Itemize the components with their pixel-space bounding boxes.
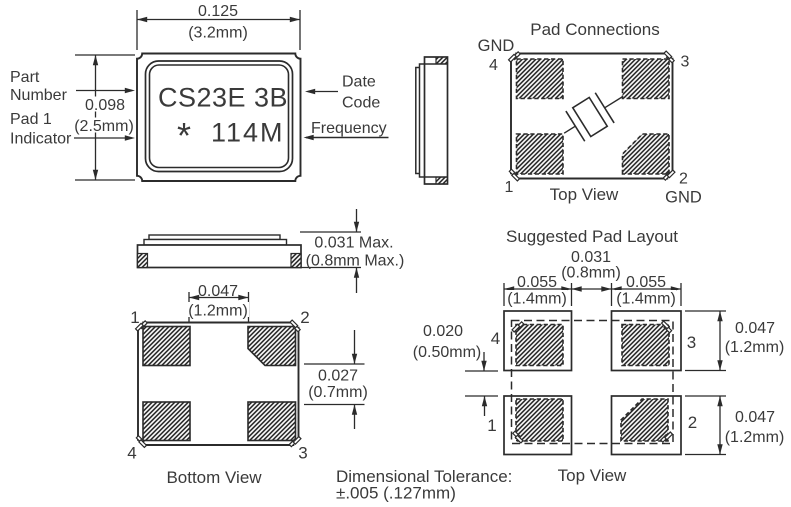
svg-text:Date: Date	[342, 73, 376, 90]
svg-text:GND: GND	[665, 188, 702, 206]
svg-text:Top View: Top View	[558, 466, 627, 485]
svg-text:Code: Code	[342, 94, 380, 111]
svg-text:±.005 (.127mm): ±.005 (.127mm)	[336, 484, 456, 503]
svg-text:Frequency: Frequency	[311, 120, 387, 137]
svg-text:GND: GND	[478, 37, 515, 55]
svg-text:114M: 114M	[211, 118, 285, 148]
svg-text:(3.2mm): (3.2mm)	[188, 24, 248, 41]
svg-text:0.020: 0.020	[423, 323, 463, 340]
svg-text:2: 2	[300, 308, 309, 327]
svg-text:0.047: 0.047	[735, 320, 775, 337]
svg-text:4: 4	[489, 57, 498, 74]
svg-text:(0.8mm Max.): (0.8mm Max.)	[306, 252, 405, 269]
svg-text:1: 1	[505, 179, 514, 196]
svg-text:Indicator: Indicator	[10, 130, 72, 147]
svg-text:0.055: 0.055	[626, 274, 666, 291]
svg-text:(2.5mm): (2.5mm)	[74, 118, 134, 135]
svg-text:2: 2	[688, 413, 697, 432]
svg-text:0.031: 0.031	[571, 249, 611, 266]
svg-text:(0.8mm): (0.8mm)	[561, 264, 621, 281]
svg-text:4: 4	[127, 444, 136, 463]
svg-text:2: 2	[679, 170, 688, 187]
svg-text:0.055: 0.055	[517, 274, 557, 291]
svg-text:(0.7mm): (0.7mm)	[308, 384, 368, 401]
svg-text:1: 1	[487, 416, 496, 435]
svg-text:(1.4mm): (1.4mm)	[616, 290, 676, 307]
svg-text:CS23E 3B: CS23E 3B	[158, 83, 288, 113]
svg-text:4: 4	[491, 329, 500, 348]
svg-text:0.125: 0.125	[198, 3, 238, 20]
svg-text:Top View: Top View	[550, 185, 619, 204]
svg-text:Number: Number	[10, 87, 68, 104]
svg-text:0.098: 0.098	[85, 97, 125, 114]
svg-text:(1.4mm): (1.4mm)	[507, 290, 567, 307]
svg-text:3: 3	[687, 333, 696, 352]
svg-text:(0.50mm): (0.50mm)	[413, 344, 481, 361]
svg-text:(1.2mm): (1.2mm)	[725, 429, 785, 446]
svg-text:3: 3	[681, 53, 690, 70]
svg-text:Suggested Pad Layout: Suggested Pad Layout	[506, 227, 678, 246]
svg-text:Part: Part	[10, 69, 40, 86]
svg-text:Pad 1: Pad 1	[10, 111, 52, 128]
svg-text:(1.2mm): (1.2mm)	[725, 339, 785, 356]
svg-text:1: 1	[130, 308, 139, 327]
svg-text:0.047: 0.047	[735, 409, 775, 426]
svg-text:0.031 Max.: 0.031 Max.	[314, 234, 393, 251]
svg-text:0.027: 0.027	[318, 367, 358, 384]
svg-text:Bottom View: Bottom View	[166, 468, 262, 487]
svg-text:(1.2mm): (1.2mm)	[188, 302, 248, 319]
svg-text:*: *	[177, 115, 191, 156]
svg-text:3: 3	[298, 444, 307, 463]
svg-text:Pad Connections: Pad Connections	[530, 20, 659, 39]
